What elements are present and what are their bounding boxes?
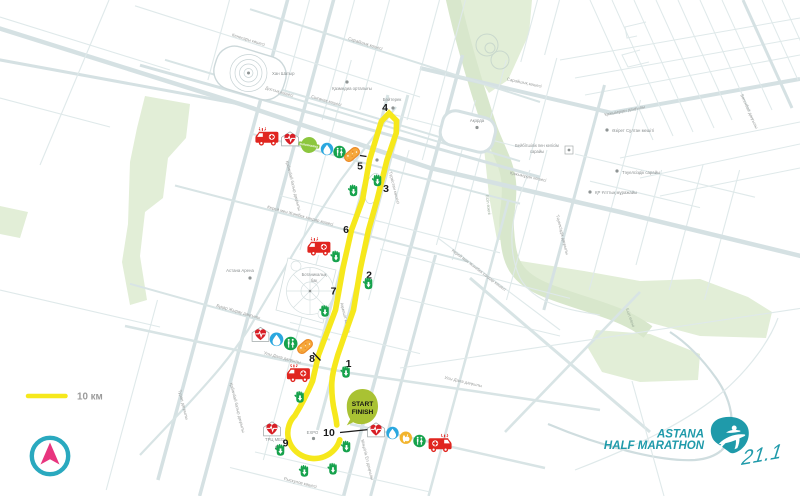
svg-text:10 км: 10 км — [77, 392, 103, 403]
svg-text:бақ: бақ — [311, 278, 318, 283]
svg-text:Бейбітшілік пен келісім: Бейбітшілік пен келісім — [515, 143, 559, 148]
svg-text:8: 8 — [309, 353, 315, 365]
svg-text:EXPO: EXPO — [307, 430, 319, 435]
svg-text:HALF MARATHON: HALF MARATHON — [604, 440, 705, 452]
svg-text:Қазмедиа орталығы: Қазмедиа орталығы — [332, 86, 372, 91]
svg-text:Астана Арена: Астана Арена — [226, 268, 254, 273]
svg-text:Әзірет Сұлтан мешіті: Әзірет Сұлтан мешіті — [612, 128, 654, 133]
svg-text:5: 5 — [357, 161, 363, 173]
svg-text:FINISH: FINISH — [352, 409, 374, 416]
svg-text:сарайы: сарайы — [530, 149, 544, 154]
svg-text:Ақорда: Ақорда — [470, 118, 485, 123]
svg-text:6: 6 — [343, 224, 349, 236]
svg-text:Хан Шатыр: Хан Шатыр — [272, 71, 295, 76]
svg-text:ASTANA: ASTANA — [656, 429, 704, 441]
svg-text:Ботаникалық: Ботаникалық — [302, 272, 327, 277]
svg-text:Тәуелсіздік сарайы: Тәуелсіздік сарайы — [622, 170, 660, 175]
svg-text:3: 3 — [383, 183, 389, 195]
svg-text:7: 7 — [331, 286, 337, 298]
svg-text:ҚР Ұлттық мұражайы: ҚР Ұлттық мұражайы — [595, 190, 637, 195]
svg-text:START: START — [352, 401, 374, 408]
svg-text:4: 4 — [382, 102, 388, 114]
svg-text:10: 10 — [323, 427, 335, 439]
